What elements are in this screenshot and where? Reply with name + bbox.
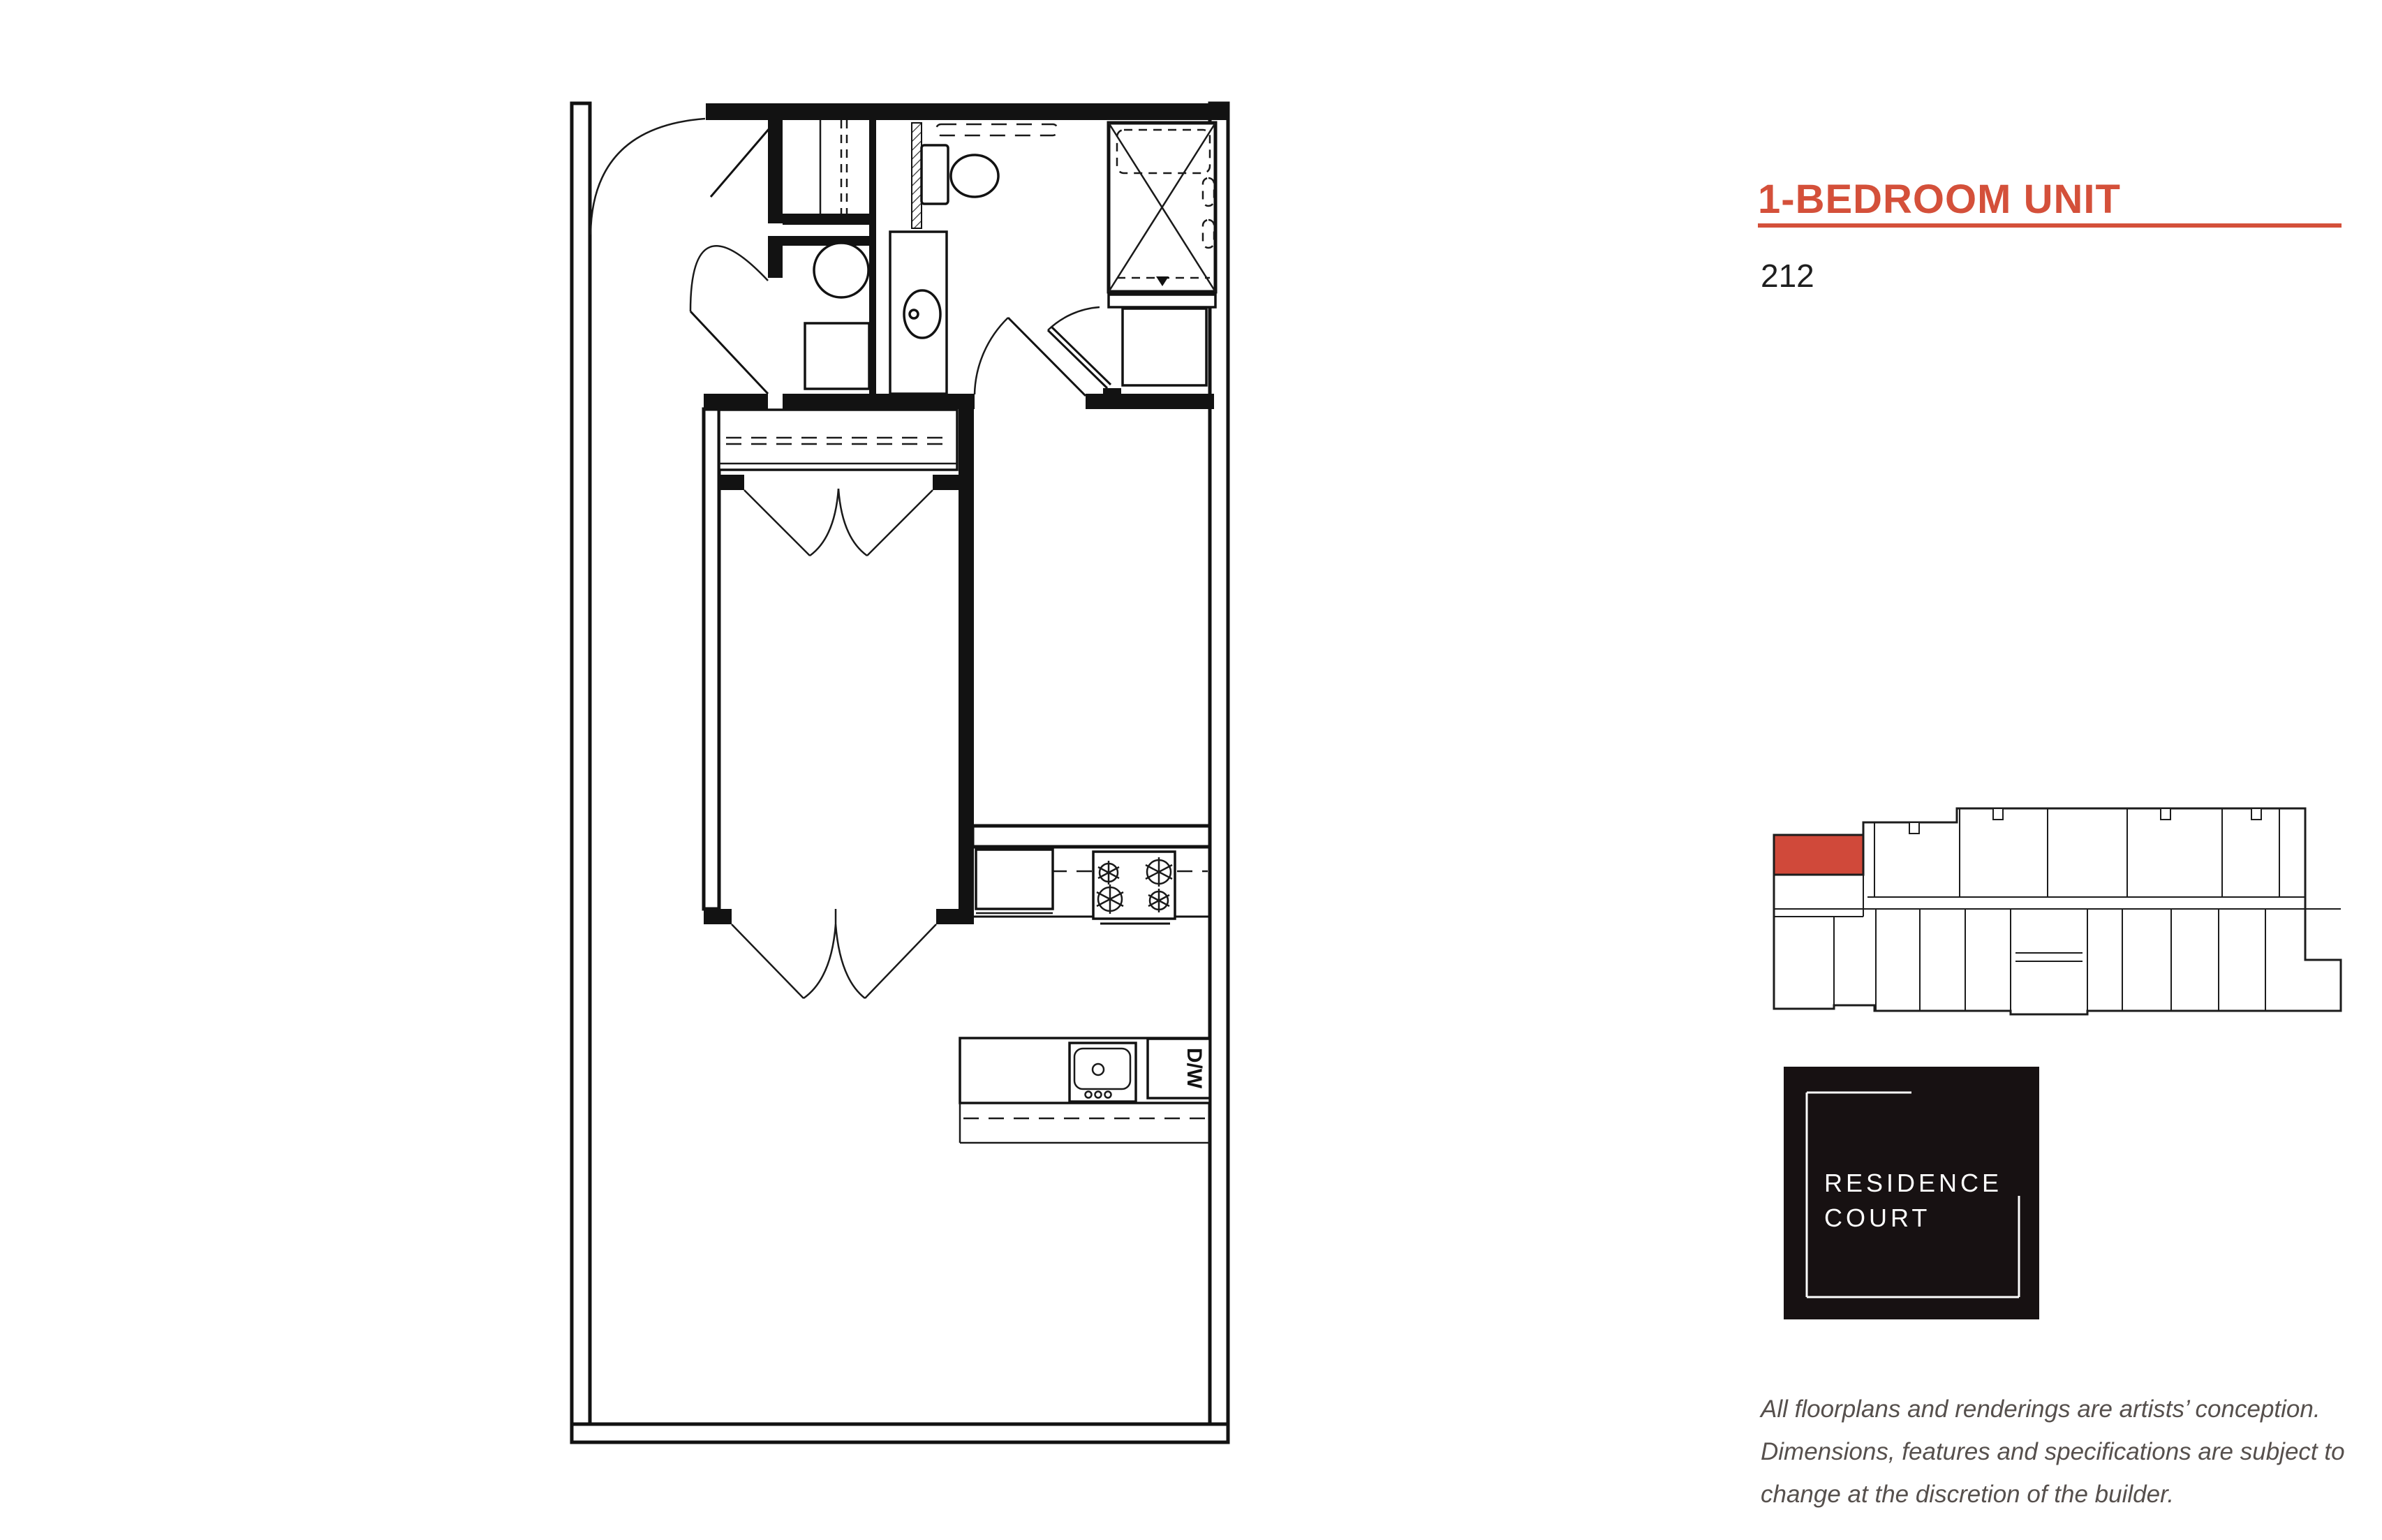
building-locator-map [1770,803,2342,1016]
hall-walls [704,394,1214,409]
shower [1109,123,1215,307]
disclaimer-line: change at the discretion of the builder. [1761,1473,2382,1516]
highlighted-unit [1774,835,1863,875]
coat-closet [768,120,876,225]
kitchen-sink [1070,1043,1136,1102]
disclaimer-text: All floorplans and renderings are artist… [1761,1388,2382,1516]
unit-floorplan-drawing: D/W [564,98,1234,1459]
floorplan-sheet: D/W 1-BEDROOM UNIT 212 [0,0,2382,1540]
logo-line2: COURT [1824,1201,2002,1236]
disclaimer-line: All floorplans and renderings are artist… [1761,1388,2382,1430]
entry-door [591,119,769,235]
kitchen: D/W [960,826,1210,1143]
brand-logo: RESIDENCE COURT [1784,1067,2039,1319]
stove [1093,852,1175,924]
bedroom [704,409,974,998]
logo-line1: RESIDENCE [1824,1166,2002,1201]
unit-number: 212 [1761,257,1814,295]
disclaimer-line: Dimensions, features and specifications … [1761,1430,2382,1473]
kitchen-island: D/W [960,1038,1210,1143]
title-underline [1758,223,2342,228]
utility-room [690,120,876,409]
page-title: 1-BEDROOM UNIT [1758,176,2121,223]
dishwasher-label: D/W [1183,1048,1206,1089]
bathroom [890,123,1086,396]
refrigerator [976,850,1053,913]
dishwasher: D/W [1148,1039,1210,1098]
